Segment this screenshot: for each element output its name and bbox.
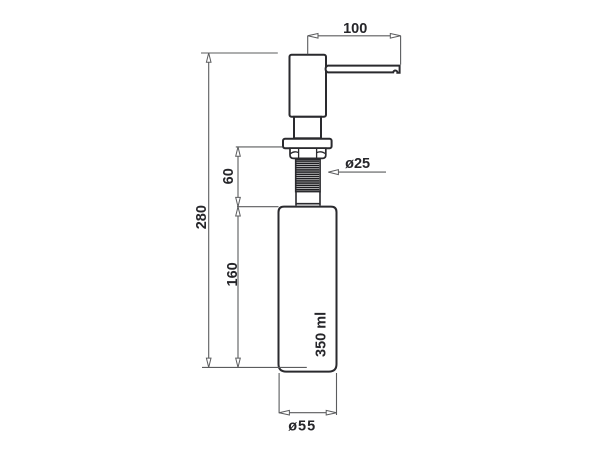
svg-text:ø55: ø55	[288, 419, 316, 435]
svg-text:100: 100	[343, 21, 367, 37]
svg-text:280: 280	[194, 205, 210, 229]
svg-text:350 ml: 350 ml	[313, 312, 329, 357]
svg-text:60: 60	[221, 168, 237, 184]
svg-text:160: 160	[225, 262, 241, 286]
svg-text:ø25: ø25	[345, 156, 370, 172]
